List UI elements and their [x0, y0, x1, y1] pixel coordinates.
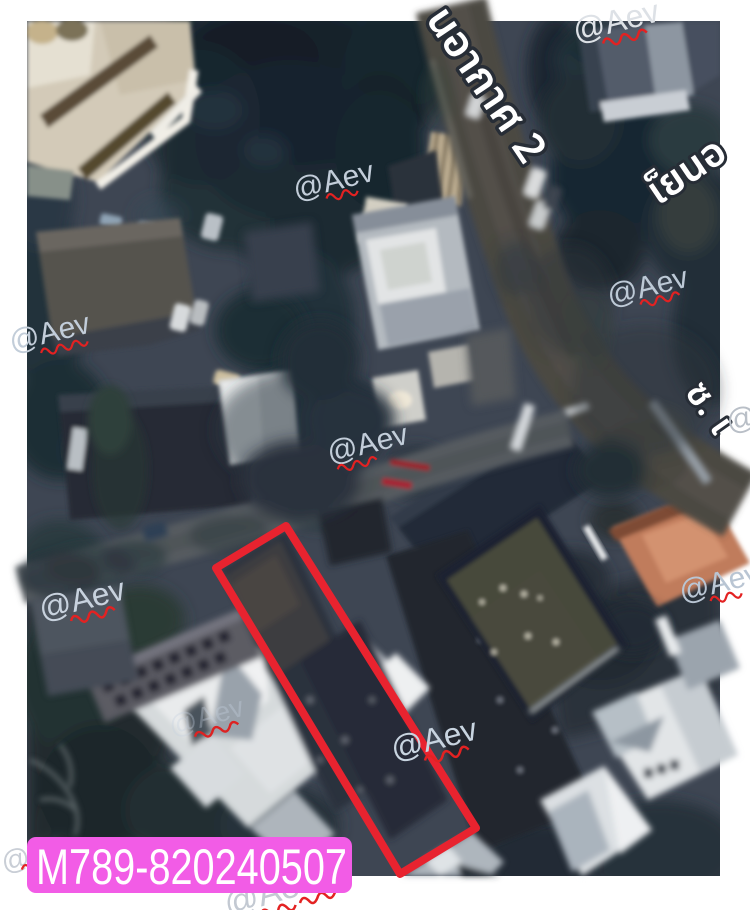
- svg-text:M789-820240507: M789-820240507: [36, 839, 347, 895]
